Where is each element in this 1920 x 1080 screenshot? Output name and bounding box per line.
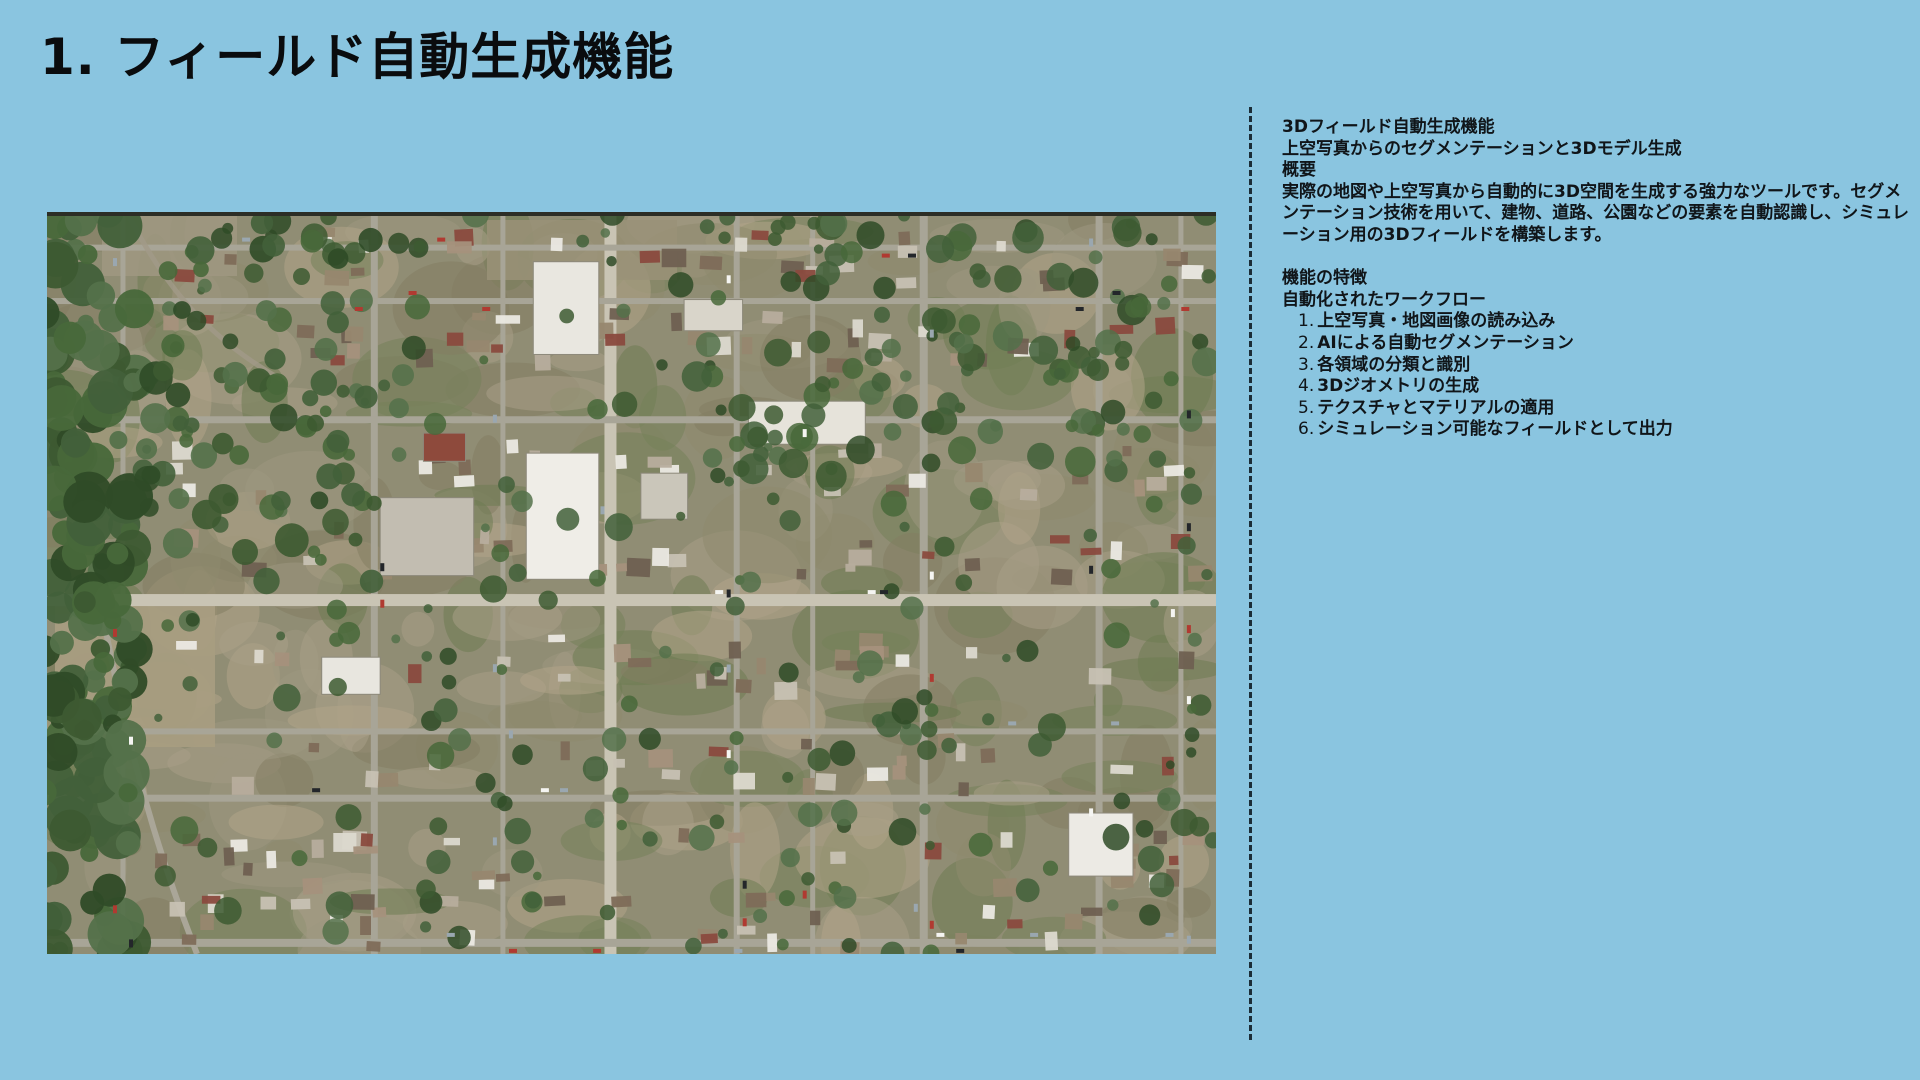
overview-body: 実際の地図や上空写真から自動的に3D空間を生成する強力なツールです。セグメンテー… [1282, 182, 1912, 247]
step-label: テクスチャとマテリアルの適用 [1317, 398, 1554, 420]
step-label: 各領域の分類と識別 [1317, 355, 1470, 377]
aerial-photo-graphic [47, 212, 1216, 954]
aerial-photo [47, 212, 1216, 954]
workflow-heading: 自動化されたワークフロー [1282, 290, 1912, 312]
blank-line [1282, 247, 1912, 269]
step-number: 1. [1298, 311, 1314, 333]
feature-subtitle: 上空写真からのセグメンテーションと3Dモデル生成 [1282, 139, 1912, 161]
page-title: 1. フィールド自動生成機能 [40, 30, 674, 85]
step-number: 4. [1298, 376, 1314, 398]
workflow-step: 1. 上空写真・地図画像の読み込み [1298, 311, 1912, 333]
details-panel: 3Dフィールド自動生成機能 上空写真からのセグメンテーションと3Dモデル生成 概… [1282, 117, 1912, 441]
workflow-step: 3. 各領域の分類と識別 [1298, 355, 1912, 377]
step-number: 5. [1298, 398, 1314, 420]
workflow-step: 4. 3Dジオメトリの生成 [1298, 376, 1912, 398]
step-label: AIによる自動セグメンテーション [1317, 333, 1574, 355]
vertical-dashed-divider [1249, 107, 1252, 1040]
step-number: 2. [1298, 333, 1314, 355]
step-label: 3Dジオメトリの生成 [1317, 376, 1479, 398]
workflow-step: 5. テクスチャとマテリアルの適用 [1298, 398, 1912, 420]
step-number: 3. [1298, 355, 1314, 377]
step-label: シミュレーション可能なフィールドとして出力 [1317, 419, 1672, 441]
workflow-steps-list: 1. 上空写真・地図画像の読み込み 2. AIによる自動セグメンテーション 3.… [1282, 311, 1912, 441]
overview-heading: 概要 [1282, 160, 1912, 182]
step-number: 6. [1298, 419, 1314, 441]
workflow-step: 2. AIによる自動セグメンテーション [1298, 333, 1912, 355]
feature-title: 3Dフィールド自動生成機能 [1282, 117, 1912, 139]
step-label: 上空写真・地図画像の読み込み [1317, 311, 1555, 333]
workflow-step: 6. シミュレーション可能なフィールドとして出力 [1298, 419, 1912, 441]
features-heading: 機能の特徴 [1282, 268, 1912, 290]
